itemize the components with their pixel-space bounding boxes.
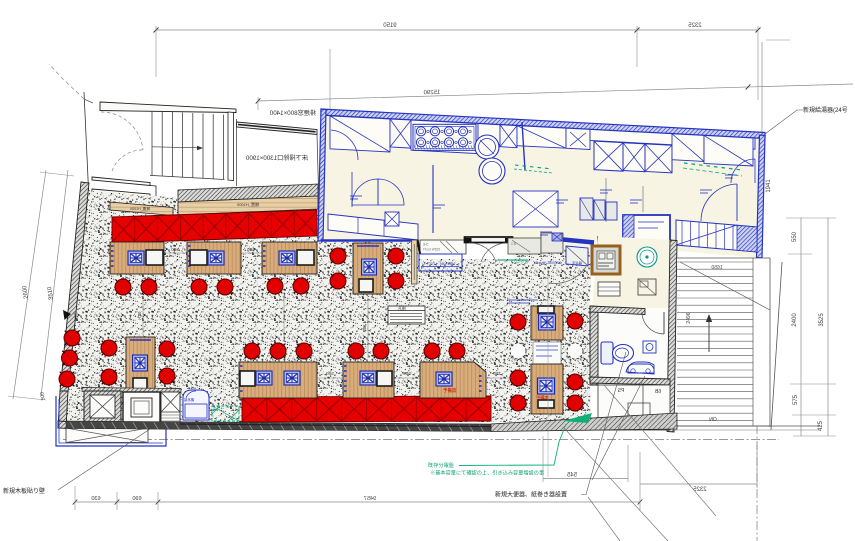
svg-text:床下掃除口1300×1900: 床下掃除口1300×1900	[245, 154, 308, 162]
svg-text:888: 888	[362, 324, 367, 332]
svg-text:545: 545	[566, 473, 577, 479]
svg-text:1941: 1941	[766, 179, 772, 193]
svg-text:棚置_H1000: 棚置_H1000	[236, 201, 259, 207]
svg-text:既存分電盤: 既存分電盤	[428, 461, 454, 469]
svg-text:630: 630	[91, 496, 100, 502]
svg-text:750: 750	[137, 311, 142, 319]
svg-text:15290: 15290	[423, 90, 441, 97]
svg-text:2400: 2400	[792, 313, 798, 327]
svg-text:3525: 3525	[819, 313, 825, 327]
svg-text:2325: 2325	[688, 23, 702, 29]
svg-text:250: 250	[493, 371, 501, 376]
svg-text:新規大便器、紙巻き器設置: 新規大便器、紙巻き器設置	[495, 491, 567, 499]
svg-text:1F avgF 2800/700: 1F avgF 2800/700	[534, 261, 562, 265]
svg-text:1650: 1650	[711, 265, 722, 271]
svg-text:500: 500	[171, 247, 179, 252]
svg-text:9457: 9457	[364, 496, 376, 502]
svg-text:凡例: 凡例	[398, 306, 406, 311]
svg-text:3-C: 3-C	[423, 243, 429, 247]
svg-text:PS: PS	[617, 388, 624, 394]
svg-text:690: 690	[132, 496, 141, 502]
svg-text:予備席: 予備席	[536, 394, 549, 401]
svg-text:575: 575	[793, 394, 799, 405]
svg-text:予備席: 予備席	[443, 387, 457, 394]
svg-text:レイアウト 980×1580: レイアウト 980×1580	[422, 261, 455, 266]
svg-text:※基本容量にて確認の上、引き込み容量増設の事: ※基本容量にて確認の上、引き込み容量増設の事	[430, 469, 544, 477]
svg-text:500: 500	[39, 391, 46, 400]
svg-text:500: 500	[247, 247, 255, 252]
svg-text:手洗器: 手洗器	[572, 261, 583, 266]
svg-text:550: 550	[792, 231, 798, 242]
svg-text:F'lerd W525: F'lerd W525	[423, 248, 440, 252]
svg-text:2496: 2496	[686, 312, 692, 323]
svg-text:ON: ON	[709, 417, 717, 423]
svg-text:500: 500	[403, 371, 411, 376]
svg-text:C'B: C'B	[511, 242, 516, 246]
svg-text:9150: 9150	[383, 23, 397, 29]
svg-text:6B: 6B	[654, 389, 661, 395]
svg-text:製氷機: 製氷機	[184, 397, 195, 402]
svg-text:新規給湯器(24号: 新規給湯器(24号	[803, 106, 848, 114]
svg-text:500: 500	[326, 371, 334, 376]
svg-text:靴置_H1000: 靴置_H1000	[130, 206, 150, 211]
svg-text:2325: 2325	[693, 487, 707, 493]
svg-text:新規木板貼り壁: 新規木板貼り壁	[3, 487, 45, 495]
svg-text:排煙窓800×1400: 排煙窓800×1400	[269, 109, 316, 117]
